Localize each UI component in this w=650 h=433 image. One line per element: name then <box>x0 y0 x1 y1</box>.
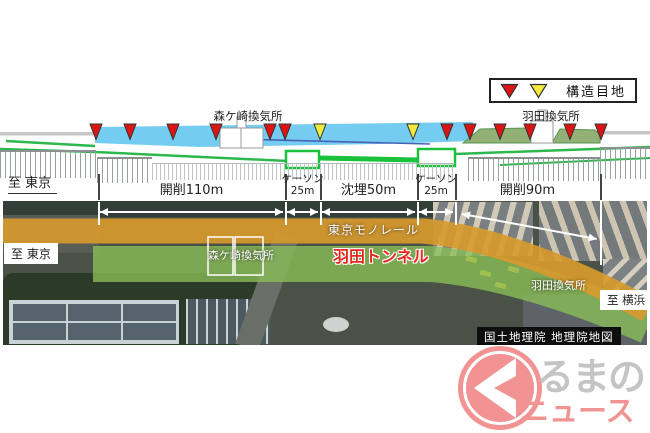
red-joint-marker-icon <box>523 123 538 141</box>
left-approach-road <box>0 132 96 136</box>
red-joint-marker-icon <box>263 123 278 141</box>
red-joint-marker-icon <box>440 123 455 141</box>
photo-measure-arrow <box>419 211 453 213</box>
kuruma-news-logo: るまの ニュース <box>440 344 650 433</box>
photo-measure-tick <box>455 202 457 225</box>
hatch-wall-far-right <box>600 147 650 179</box>
photo-measure-arrow <box>100 211 283 213</box>
yellow-joint-marker-icon <box>406 123 421 141</box>
dimension-label: 開削110m <box>132 179 252 198</box>
hatch-wall-right <box>468 157 600 181</box>
map-credit: 国土地理院 地理院地図 <box>477 327 621 345</box>
to-tokyo-label-top: 至 東京 <box>8 172 57 194</box>
haneda-vent-label: 羽田換気所 <box>520 108 582 124</box>
to-tokyo-label-photo: 至 東京 <box>4 243 58 264</box>
morigasaki-photo-label: 森ケ崎換気所 <box>208 247 274 263</box>
red-joint-marker-icon <box>563 123 578 141</box>
monorail-label: 東京モノレール <box>328 221 419 238</box>
red-joint-marker-icon <box>123 123 138 141</box>
red-joint-marker-icon <box>89 123 104 141</box>
photo-measure-arrow <box>287 211 318 213</box>
to-yokohama-label-photo: 至 横浜 <box>600 290 647 310</box>
red-joint-marker-icon <box>278 123 293 141</box>
dimension-tick <box>98 174 100 200</box>
red-joint-marker-icon <box>493 123 508 141</box>
yellow-joint-marker-icon <box>313 123 328 141</box>
red-joint-marker-icon <box>463 123 478 141</box>
route-bands <box>3 201 647 345</box>
red-joint-marker-icon <box>166 123 181 141</box>
immersed-section-line <box>320 158 418 160</box>
figure-canvas: 構造目地 森ケ崎換気所 羽田換気所 至 東京 <box>0 0 650 433</box>
aerial-photo: 東京モノレール 羽田トンネル 森ケ崎換気所 羽田換気所 至 東京 至 横浜 国土… <box>3 201 647 345</box>
morigasaki-vent-label: 森ケ崎換気所 <box>202 108 294 124</box>
dimension-label: 開削90m <box>468 179 588 198</box>
dimension-label: ケーソン25m <box>396 173 476 197</box>
red-joint-marker-icon <box>594 123 609 141</box>
dimension-tick <box>600 174 602 200</box>
portal-boundary-line <box>600 201 602 265</box>
red-joint-marker-icon <box>209 123 224 141</box>
haneda-photo-label: 羽田換気所 <box>531 277 586 293</box>
ground-line <box>6 141 95 146</box>
dimension-tick <box>455 174 457 200</box>
logo-text-2: ニュース <box>520 388 635 430</box>
tunnel-name-label: 羽田トンネル <box>333 243 429 267</box>
photo-measure-arrow <box>322 211 415 213</box>
